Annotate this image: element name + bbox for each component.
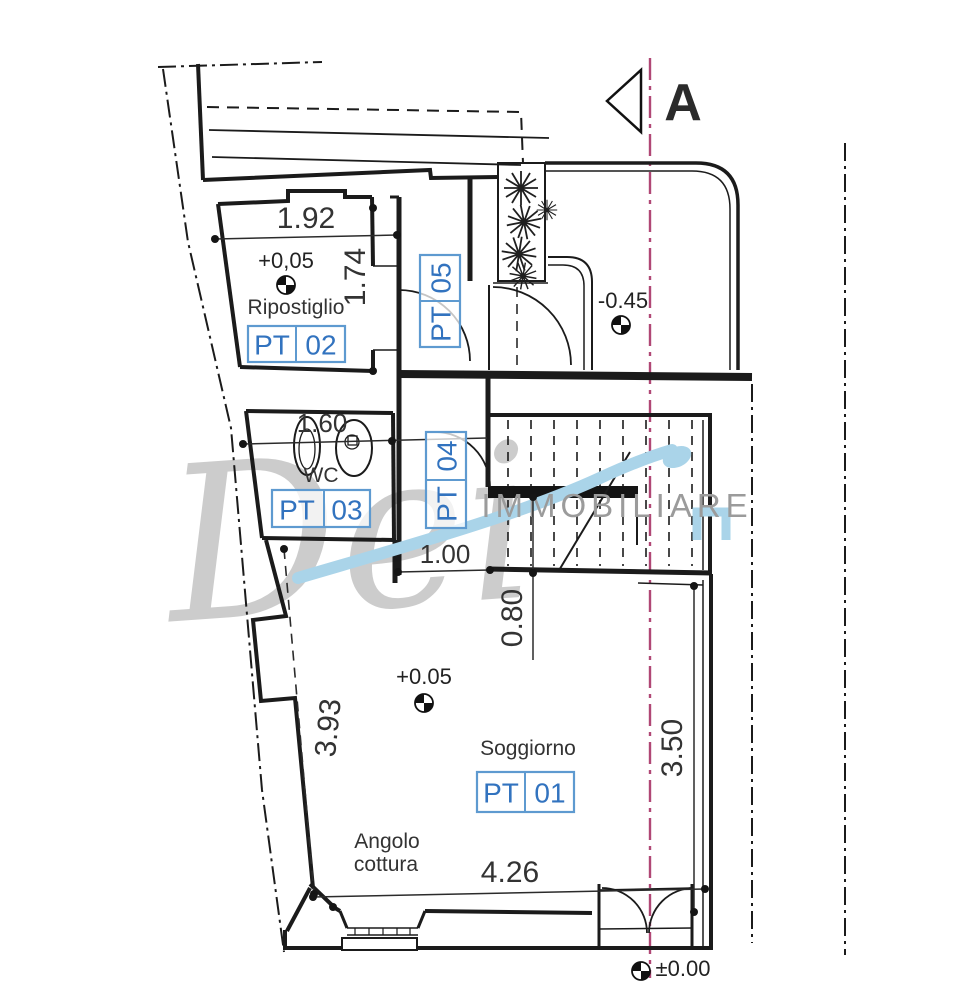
dim-soggiorno-right: 3.50 [656,719,689,777]
room-name-wc: WC [304,464,339,487]
svg-text:01: 01 [534,778,565,809]
planter [495,163,557,292]
section-marker: A [607,70,702,132]
svg-text:PT: PT [483,778,519,809]
dim-soggiorno-left: 3.93 [309,697,348,759]
section-label: A [664,74,702,132]
dim-soggiorno-width: 4.26 [481,856,539,889]
dim-wc-width: 1.60 [297,408,348,438]
entrance-door [599,884,694,948]
plant-icon [504,171,538,205]
unit-label-pt04: PT 04 [426,432,466,528]
benchmark-icon [277,276,295,294]
elevation-terrace: -0.45 [598,288,648,313]
elevation-soggiorno: +0.05 [396,664,452,689]
room-name-soggiorno: Soggiorno [480,737,576,760]
dim-ripostiglio-width: 1.92 [277,202,335,235]
svg-text:05: 05 [426,262,457,293]
unit-label-pt02: PT 02 [248,326,345,362]
upper-structure-walls [198,64,549,180]
unit-label-pt05: PT 05 [420,255,460,347]
elevation-entrance: ±0.00 [656,956,711,981]
room-name-kitchen-line1: Angolo [354,830,419,853]
svg-text:04: 04 [432,440,463,471]
dim-stair-passage: 0.80 [496,589,529,647]
benchmark-icon [632,962,650,980]
plant-icon [502,200,546,244]
benchmark-icon [612,316,630,334]
plant-icon [537,200,557,220]
svg-text:PT: PT [279,495,315,526]
kitchen-window [342,928,418,950]
svg-text:PT: PT [426,306,457,342]
watermark-caption: IMMOBILIARE [481,487,752,524]
room-name-kitchen-line2: cottura [354,853,419,876]
svg-text:PT: PT [254,330,290,361]
unit-label-pt01: PT 01 [477,772,574,812]
svg-text:02: 02 [305,330,336,361]
unit-label-pt03: PT 03 [272,490,370,527]
terrace-door [493,287,571,365]
dim-passage-width: 1.00 [420,539,471,569]
door-swing-arc [493,287,571,365]
svg-text:03: 03 [331,495,362,526]
section-arrow-icon [607,70,641,132]
door-swing-arc [649,888,694,933]
door-swing-arc [602,888,647,933]
room-name-ripostiglio: Ripostiglio [248,296,345,319]
floor-plan: A [0,0,977,1000]
floor-plan-drawing: A [0,0,977,1000]
svg-text:PT: PT [432,486,463,522]
elevation-ripostiglio: +0,05 [258,248,314,273]
benchmark-icon [415,694,433,712]
